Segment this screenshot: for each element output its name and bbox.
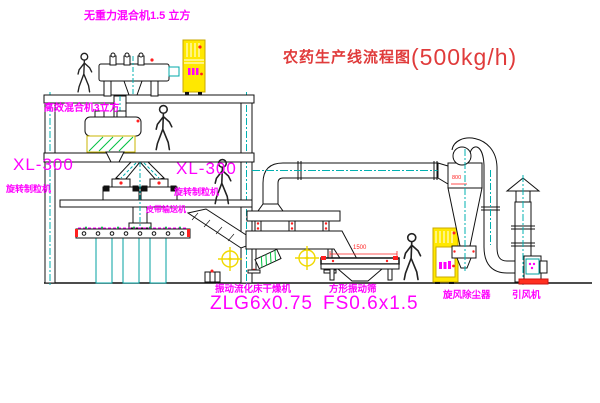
square-sieve-drawing: [321, 251, 399, 281]
crosshair-joint-icon: [218, 247, 242, 271]
label-cyclone: 旋风除尘器: [443, 291, 491, 301]
title-capacity: (500kg/h): [411, 44, 517, 71]
person-icon: [404, 234, 420, 280]
pfd-canvas: 农药生产线流程图 (500kg/h) 无重力混合机1.5 立方 高效混合机3立方…: [0, 0, 600, 403]
label-fan: 引风机: [512, 291, 541, 301]
title-name: 农药生产线流程图: [283, 46, 411, 71]
label-granulator-right-model: XL-300: [176, 160, 237, 177]
exhaust-duct: [252, 161, 446, 211]
person-icon: [156, 106, 172, 150]
label-granulator-right-name: 旋转制粒机: [174, 188, 219, 197]
granulator-left-drawing: [103, 179, 139, 200]
crosshair-joint-icon: [295, 246, 319, 270]
label-granulator-left-name: 旋转制粒机: [6, 185, 51, 194]
label-top-mixer: 无重力混合机1.5 立方: [84, 11, 190, 22]
zero-gravity-mixer-drawing: [99, 53, 179, 96]
label-floor2-mixer: 高效混合机3立方: [44, 104, 120, 114]
label-granulator-left-model: XL-300: [13, 156, 74, 173]
granulator-right-drawing: [141, 179, 177, 200]
conveyor-legs: [96, 237, 166, 283]
person-icon: [78, 53, 92, 92]
dimension-cyclone-diameter: 800: [452, 176, 461, 182]
control-cabinet-icon: [183, 40, 205, 95]
dimension-sieve-length: 1500: [353, 245, 366, 251]
label-dryer-model: ZLG6x0.75: [210, 294, 313, 313]
label-belt-conveyor: 皮带输送机: [146, 206, 186, 214]
label-sieve-model: FS0.6x1.5: [323, 294, 419, 313]
diagram-title: 农药生产线流程图 (500kg/h): [283, 44, 517, 71]
